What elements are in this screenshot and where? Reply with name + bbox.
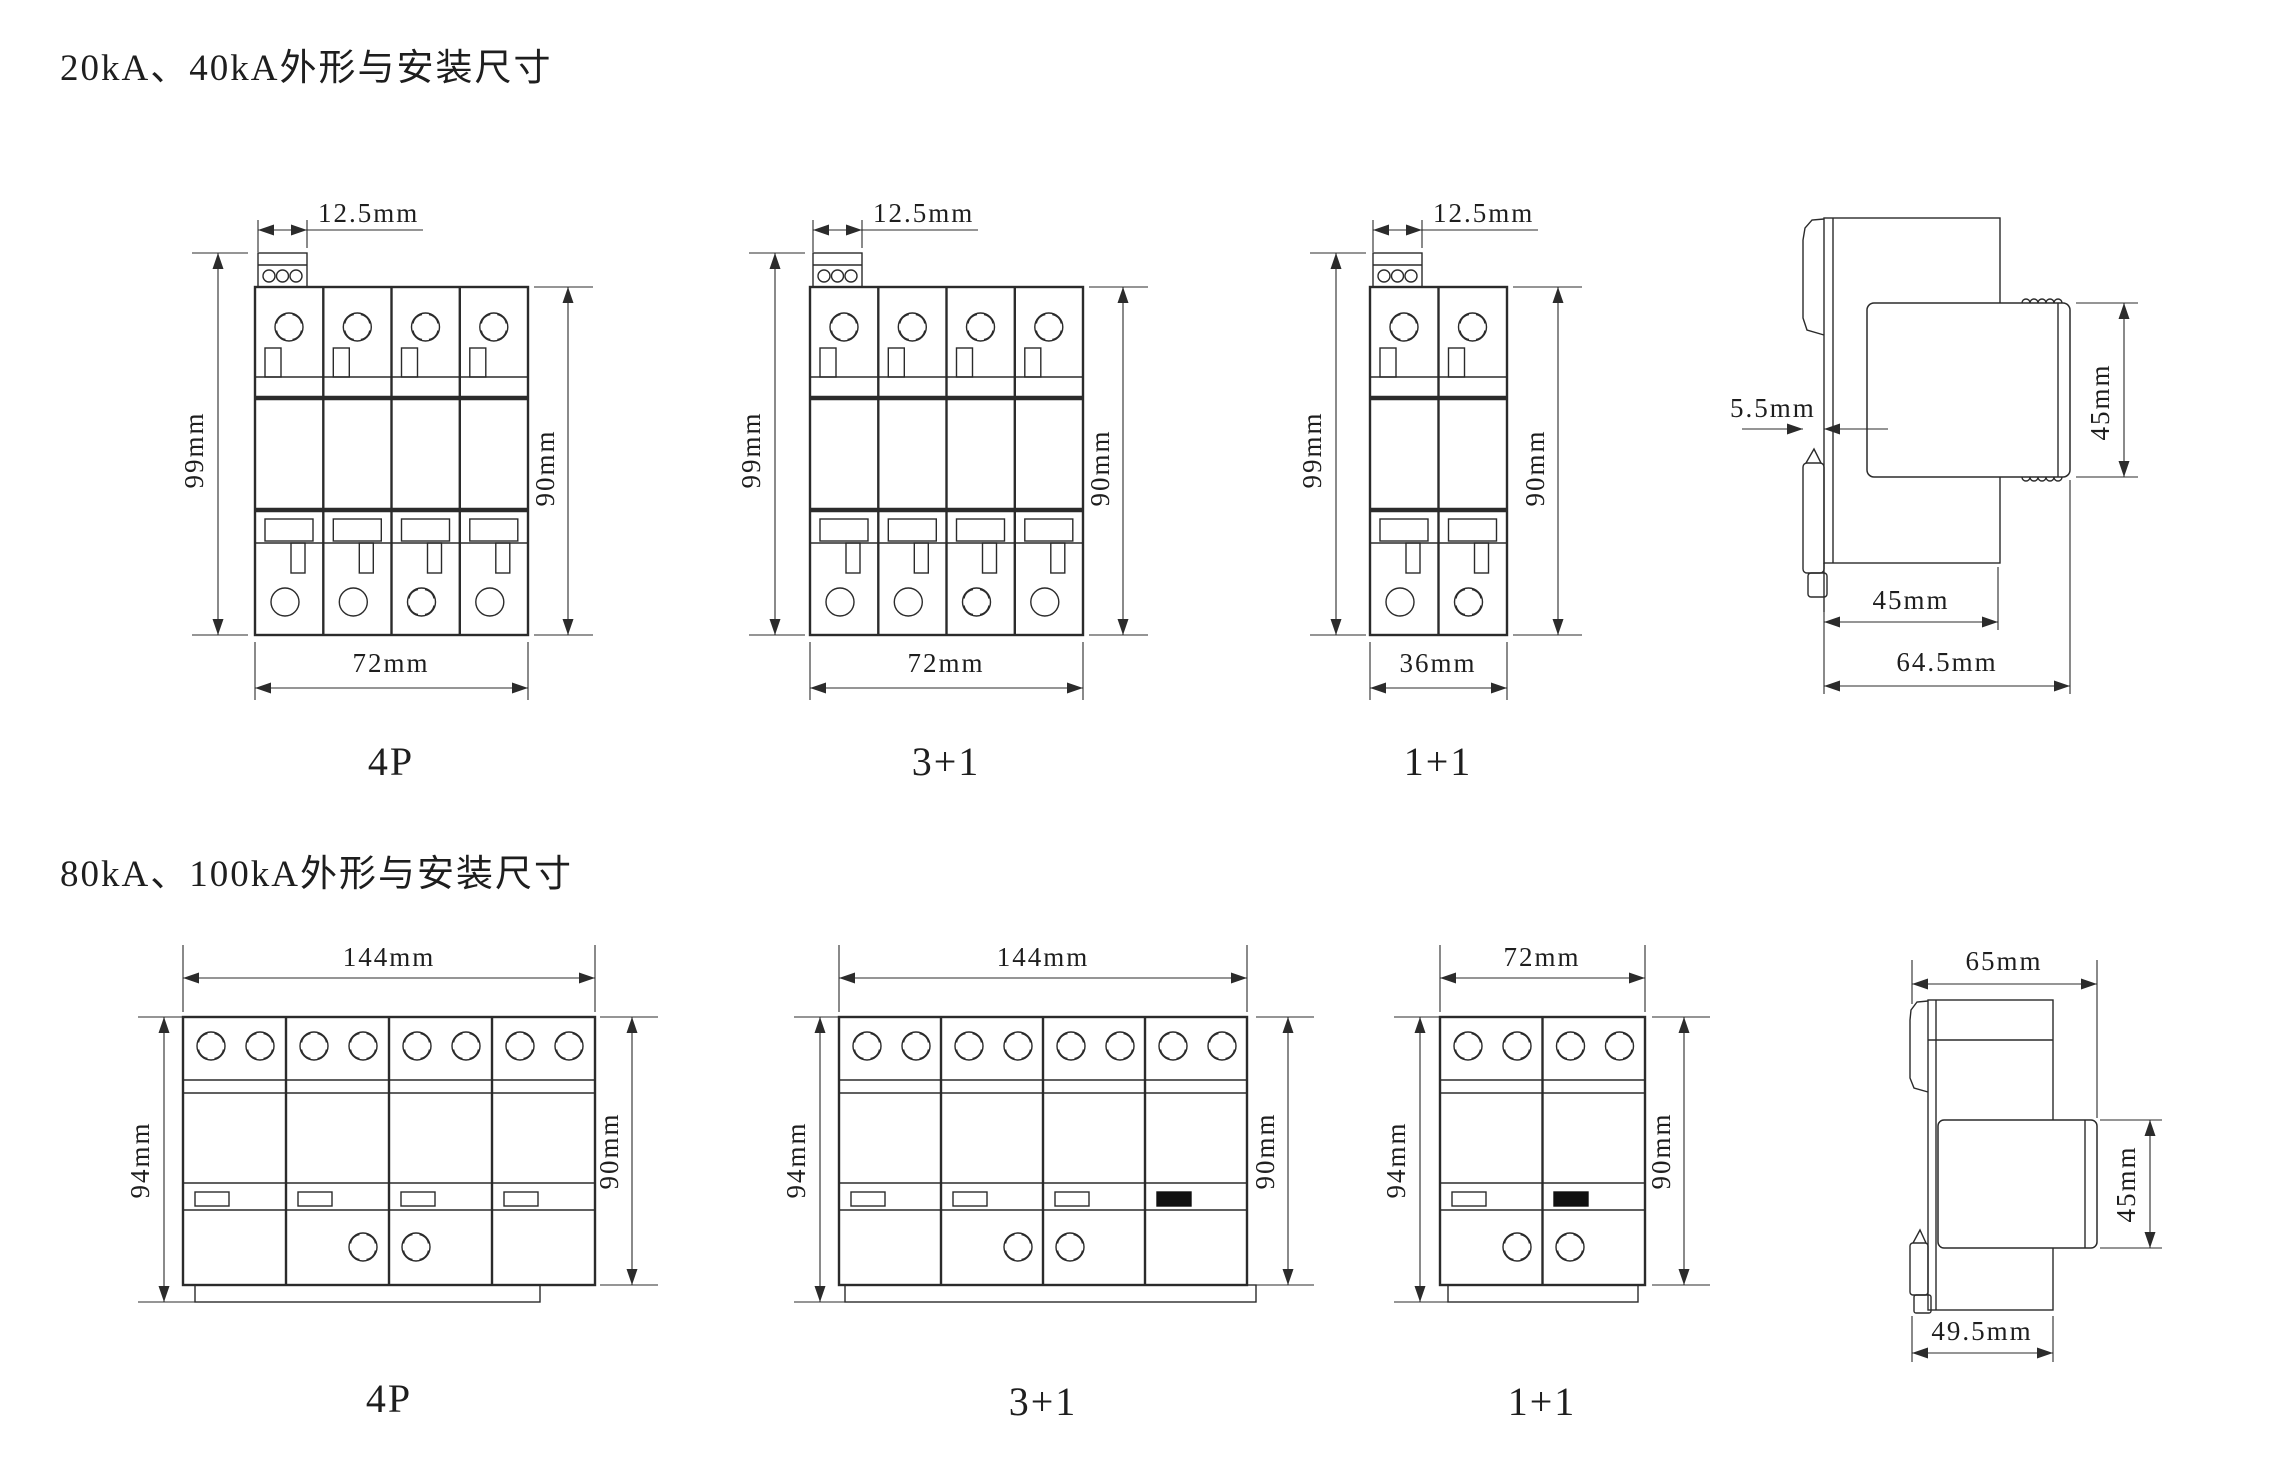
plug-in-module-profile — [1867, 303, 2070, 477]
dim-top-label: 72mm — [1503, 942, 1580, 972]
dim-gap-label: 5.5mm — [1730, 393, 1816, 423]
section1-title: 20kA、40kA外形与安装尺寸 — [60, 47, 552, 89]
dim-bottom-label: 72mm — [907, 648, 984, 678]
dim-right-label: 90mm — [1520, 429, 1550, 506]
dim-depth-label: 45mm — [1872, 585, 1949, 615]
dim-left-label: 99mm — [736, 411, 766, 488]
dim-top-label: 12.5mm — [873, 198, 974, 228]
dim-bottom-label: 49.5mm — [1931, 1316, 2032, 1346]
dim-right-label: 90mm — [1646, 1112, 1676, 1189]
dim-left-label: 94mm — [125, 1121, 155, 1198]
dim-bottom-label: 72mm — [352, 648, 429, 678]
spd-dimension-drawing: 20kA、40kA外形与安装尺寸 12.5mm 99mm 90mm — [0, 0, 2279, 1467]
variant-label: 3+1 — [1009, 1379, 1078, 1424]
dim-top-label: 65mm — [1965, 946, 2042, 976]
status-window-dark — [1554, 1192, 1588, 1206]
dim-right-label: 90mm — [530, 429, 560, 506]
variant-label: 1+1 — [1508, 1379, 1577, 1424]
variant-label: 1+1 — [1404, 739, 1473, 784]
variant-label: 4P — [368, 739, 414, 784]
dim-left-label: 94mm — [781, 1121, 811, 1198]
section2-title: 80kA、100kA外形与安装尺寸 — [60, 853, 573, 895]
dim-right-label: 90mm — [1250, 1112, 1280, 1189]
dim-top-label: 12.5mm — [318, 198, 419, 228]
dim-right-label: 90mm — [1085, 429, 1115, 506]
plug-in-module-profile — [1938, 1120, 2097, 1248]
dim-top-label: 12.5mm — [1433, 198, 1534, 228]
variant-label: 3+1 — [912, 739, 981, 784]
dim-left-label: 94mm — [1381, 1121, 1411, 1198]
dim-left-label: 99mm — [179, 411, 209, 488]
status-window-dark — [1157, 1192, 1191, 1206]
dim-top-label: 144mm — [997, 942, 1090, 972]
dim-left-label: 99mm — [1297, 411, 1327, 488]
dim-right-label: 45mm — [2111, 1145, 2141, 1222]
dim-top-label: 144mm — [343, 942, 436, 972]
dim-bottom-label: 36mm — [1399, 648, 1476, 678]
dim-total-depth-label: 64.5mm — [1896, 647, 1997, 677]
dim-right-label: 90mm — [594, 1112, 624, 1189]
variant-label: 4P — [366, 1376, 412, 1421]
dim-module-height-label: 45mm — [2085, 363, 2115, 440]
drawing-canvas: 20kA、40kA外形与安装尺寸 12.5mm 99mm 90mm — [0, 0, 2279, 1467]
